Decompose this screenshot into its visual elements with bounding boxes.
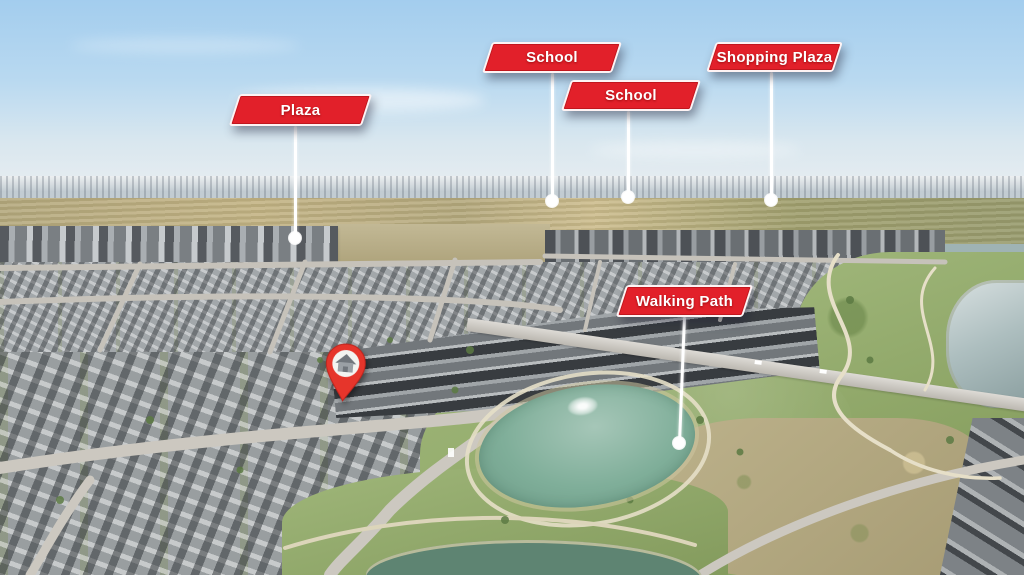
- callout-label: School: [487, 42, 617, 73]
- callout-label: School: [566, 80, 696, 111]
- callout-location-dot: [621, 190, 635, 204]
- property-location-pin: [318, 340, 371, 406]
- pond-fountain: [566, 395, 598, 417]
- callout-location-dot: [545, 194, 559, 208]
- callout-walking-path: Walking Path: [621, 285, 748, 317]
- callout-plaza: Plaza: [234, 94, 367, 126]
- callout-location-dot: [764, 193, 778, 207]
- callout-school-2: School: [566, 80, 696, 111]
- aerial-photo: Plaza School School Shopping Plaza Walki…: [0, 0, 1024, 575]
- callout-label: Shopping Plaza: [711, 42, 838, 72]
- callout-leader-line: [627, 111, 630, 197]
- callout-location-dot: [672, 436, 686, 450]
- callout-leader-line: [294, 126, 297, 238]
- callout-label: Walking Path: [621, 285, 748, 317]
- callout-leader-line: [770, 72, 773, 200]
- callout-school-1: School: [487, 42, 617, 73]
- callout-label: Plaza: [234, 94, 367, 126]
- callout-shopping-plaza: Shopping Plaza: [711, 42, 838, 72]
- callout-leader-line: [551, 73, 554, 201]
- callout-location-dot: [288, 231, 302, 245]
